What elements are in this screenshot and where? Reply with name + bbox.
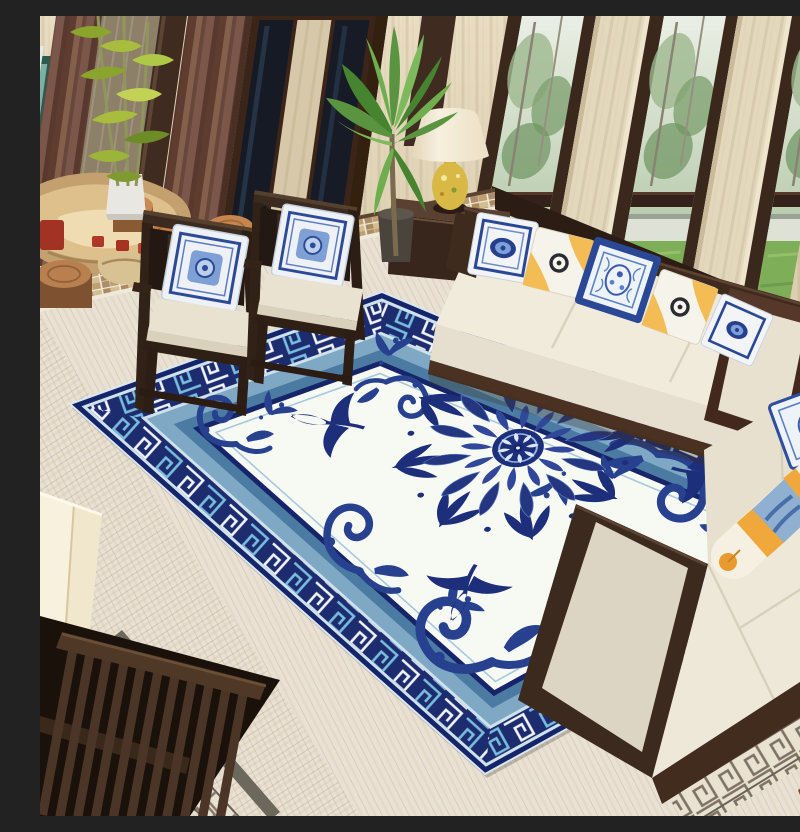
living-room-scene — [40, 16, 800, 816]
tea-pot — [40, 220, 64, 250]
tea-cup — [116, 240, 129, 251]
stump-stool — [40, 260, 92, 308]
tea-cup — [92, 236, 104, 247]
living-room-photo: New Chinese style living room with blue … — [40, 16, 800, 816]
lamp-vase-base — [432, 162, 468, 210]
